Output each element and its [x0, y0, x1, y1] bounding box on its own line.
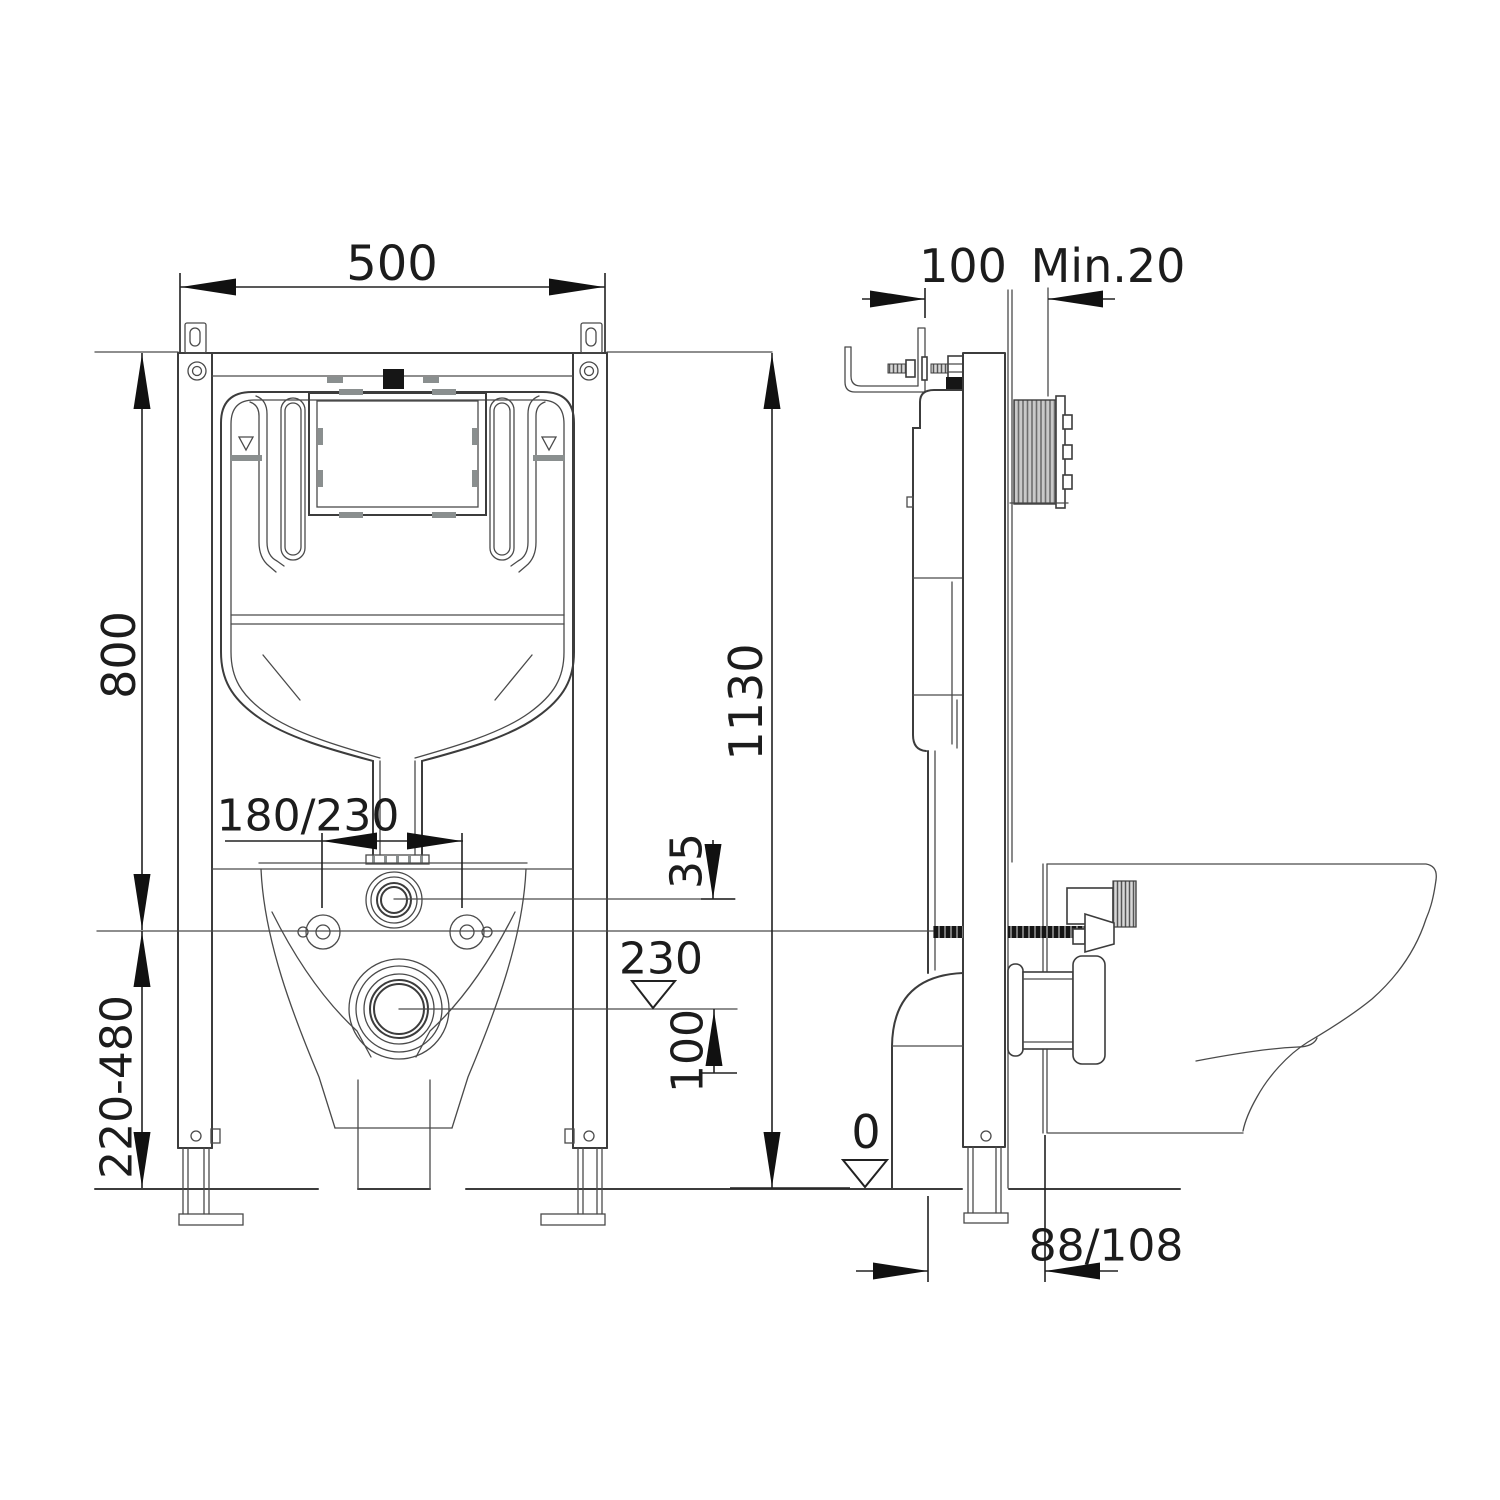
dim-bracket-depth-100: 100 — [862, 239, 1007, 318]
water-inlet-port — [366, 872, 422, 928]
wall-bracket — [845, 328, 963, 392]
technical-drawing-page: 500 800 220-480 1130 180/230 — [0, 0, 1500, 1500]
service-cap — [383, 369, 404, 389]
mounting-tab-right — [581, 323, 602, 353]
dim-width-500: 500 — [180, 236, 605, 352]
access-panel — [309, 389, 486, 518]
dim-min-wall-label: Min.20 — [1031, 239, 1186, 293]
level-230-label: 230 — [619, 934, 703, 985]
frame-side — [963, 353, 1008, 1223]
screw-hole-right — [580, 362, 598, 380]
dimension-arrow-icon — [134, 874, 151, 929]
dim-offset-35: 35 — [662, 833, 736, 899]
fixing-rod-side — [933, 914, 1114, 952]
dim-hole-spacing-label: 180/230 — [217, 791, 400, 842]
protection-box — [1010, 396, 1072, 508]
level-triangle-icon — [632, 981, 675, 1008]
bowl-outline-front — [212, 863, 573, 1189]
front-view — [178, 323, 607, 1225]
dimension-arrow-icon — [134, 354, 151, 409]
dim-width-label: 500 — [346, 236, 438, 292]
level-marker-230: 230 — [619, 934, 703, 1009]
installation-frame-drawing: 500 800 220-480 1130 180/230 — [0, 0, 1500, 1500]
level-triangle-icon — [843, 1160, 887, 1187]
dim-outlet-drop-label: 100 — [663, 1009, 714, 1093]
dimension-arrow-icon — [764, 354, 781, 409]
dim-outlet-distance-label: 88/108 — [1029, 1221, 1184, 1272]
screw-hole-left — [188, 362, 206, 380]
dimension-arrow-icon — [873, 1263, 928, 1280]
dim-adjust-range-label: 220-480 — [92, 995, 143, 1179]
dim-adjust-range-220-480: 220-480 — [92, 931, 151, 1188]
dimension-arrow-icon — [549, 279, 604, 296]
frame-front — [178, 323, 607, 1148]
legs-front — [179, 1129, 605, 1225]
cistern-side — [907, 390, 963, 973]
level-0-label: 0 — [851, 1105, 880, 1159]
dimension-arrow-icon — [870, 291, 925, 308]
dimension-arrow-icon — [764, 1132, 781, 1187]
spacer-block — [946, 377, 963, 390]
dim-offset-label: 35 — [662, 833, 713, 889]
threaded-rod-icon — [888, 364, 906, 373]
dim-upper-height-800: 800 — [92, 353, 151, 930]
side-view — [845, 288, 1436, 1223]
fixing-hole-right — [450, 915, 492, 949]
outlet-flange-side — [1008, 956, 1105, 1064]
outlet-elbow-side — [892, 973, 963, 1188]
dimension-arrow-icon — [134, 932, 151, 987]
dimension-arrow-icon — [1048, 291, 1103, 308]
dim-min-wall-20: Min.20 — [1031, 239, 1186, 308]
dimension-arrow-icon — [407, 833, 462, 850]
connection-ports-front — [298, 872, 492, 1059]
dim-outlet-distance-88-108: 88/108 — [856, 1135, 1183, 1282]
water-level-mark-right — [533, 437, 565, 461]
dim-total-height-label: 1130 — [719, 643, 773, 760]
dim-outlet-drop-100: 100 — [663, 1009, 738, 1093]
dim-hole-spacing-180-230: 180/230 — [217, 791, 463, 909]
water-level-mark-left — [230, 437, 262, 461]
level-marker-0: 0 — [843, 1105, 887, 1187]
mounting-tab-left — [185, 323, 206, 353]
dim-bracket-depth-label: 100 — [919, 239, 1007, 293]
dim-total-height-1130: 1130 — [719, 353, 850, 1188]
dimension-arrow-icon — [181, 279, 236, 296]
fixing-hole-left — [298, 915, 340, 949]
dim-upper-height-label: 800 — [92, 611, 146, 699]
